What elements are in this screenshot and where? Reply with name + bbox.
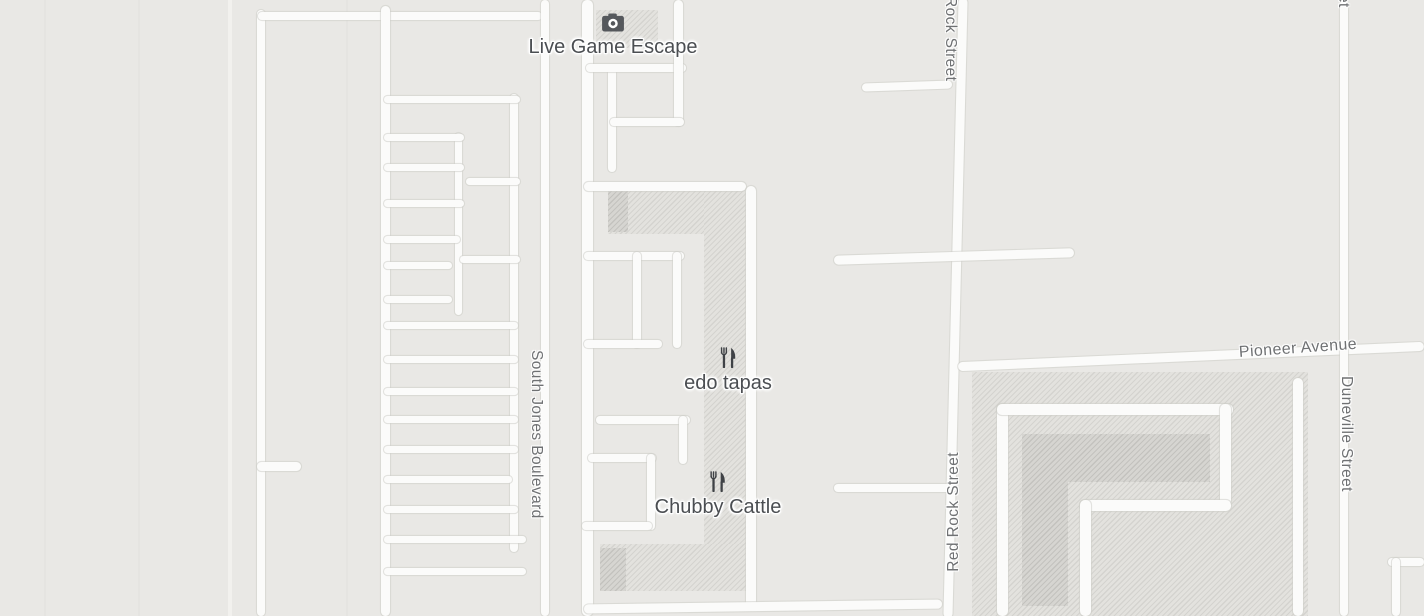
street-label-duneville-street: Duneville Street bbox=[1337, 376, 1355, 492]
street-label-south-jones-boulevard: South Jones Boulevard bbox=[527, 350, 545, 519]
map-canvas[interactable]: South Jones Boulevard Rock Street Red Ro… bbox=[0, 0, 1424, 616]
road-segment bbox=[455, 133, 462, 315]
road-segment bbox=[384, 164, 464, 171]
road-segment bbox=[44, 0, 46, 616]
road-segment bbox=[228, 0, 232, 616]
road-segment bbox=[746, 186, 756, 610]
road-segment bbox=[582, 522, 652, 530]
road-segment bbox=[258, 12, 542, 20]
poi-live-game-escape[interactable]: Live Game Escape bbox=[529, 13, 698, 59]
road-segment bbox=[466, 178, 520, 185]
road-segment bbox=[596, 416, 690, 424]
road-segment bbox=[384, 356, 518, 363]
road-segment bbox=[584, 600, 942, 614]
road-segment bbox=[541, 0, 549, 616]
road-segment bbox=[1293, 378, 1303, 616]
road-segment bbox=[1220, 404, 1231, 505]
street-label-partial-street: et bbox=[1334, 0, 1352, 8]
street-label-red-rock-street: Red Rock Street bbox=[945, 452, 963, 572]
road-segment bbox=[610, 118, 684, 126]
road-segment bbox=[384, 296, 452, 303]
road-segment bbox=[384, 416, 518, 423]
road-segment bbox=[257, 462, 301, 471]
building-area bbox=[1022, 434, 1068, 606]
road-segment bbox=[384, 536, 526, 543]
road-segment bbox=[138, 0, 140, 616]
road-segment bbox=[384, 134, 464, 141]
building-area bbox=[608, 190, 628, 232]
road-segment bbox=[997, 404, 1233, 415]
road-segment bbox=[384, 388, 518, 395]
road-segment bbox=[257, 10, 265, 616]
road-segment bbox=[633, 252, 641, 348]
restaurant-icon bbox=[719, 347, 737, 368]
road-segment bbox=[1392, 558, 1400, 616]
road-segment bbox=[384, 322, 518, 329]
road-segment bbox=[584, 340, 662, 348]
road-segment bbox=[834, 484, 956, 492]
road-segment bbox=[384, 200, 464, 207]
road-segment bbox=[384, 236, 460, 243]
road-segment bbox=[586, 64, 686, 72]
poi-label: Live Game Escape bbox=[529, 36, 698, 59]
building-area bbox=[600, 548, 626, 591]
road-segment bbox=[384, 568, 526, 575]
road-segment bbox=[862, 80, 952, 91]
road-segment bbox=[384, 262, 452, 269]
poi-edo-tapas[interactable]: edo tapas bbox=[684, 347, 772, 395]
street-label-rock-street: Rock Street bbox=[941, 0, 959, 81]
poi-chubby-cattle[interactable]: Chubby Cattle bbox=[655, 471, 782, 519]
road-segment bbox=[673, 252, 681, 348]
road-segment bbox=[679, 416, 687, 464]
camera-icon bbox=[601, 13, 624, 32]
road-segment bbox=[384, 476, 512, 483]
road-segment bbox=[460, 256, 520, 263]
road-segment bbox=[1080, 500, 1231, 511]
poi-label: edo tapas bbox=[684, 372, 772, 395]
restaurant-icon bbox=[709, 471, 727, 492]
road-segment bbox=[384, 506, 518, 513]
road-segment bbox=[346, 0, 348, 616]
road-segment bbox=[1080, 500, 1091, 616]
road-segment bbox=[384, 96, 520, 103]
road-segment bbox=[1340, 0, 1348, 616]
road-segment bbox=[384, 446, 518, 453]
road-segment bbox=[588, 454, 656, 462]
poi-label: Chubby Cattle bbox=[655, 496, 782, 519]
road-segment bbox=[997, 404, 1008, 616]
road-segment bbox=[584, 182, 746, 191]
